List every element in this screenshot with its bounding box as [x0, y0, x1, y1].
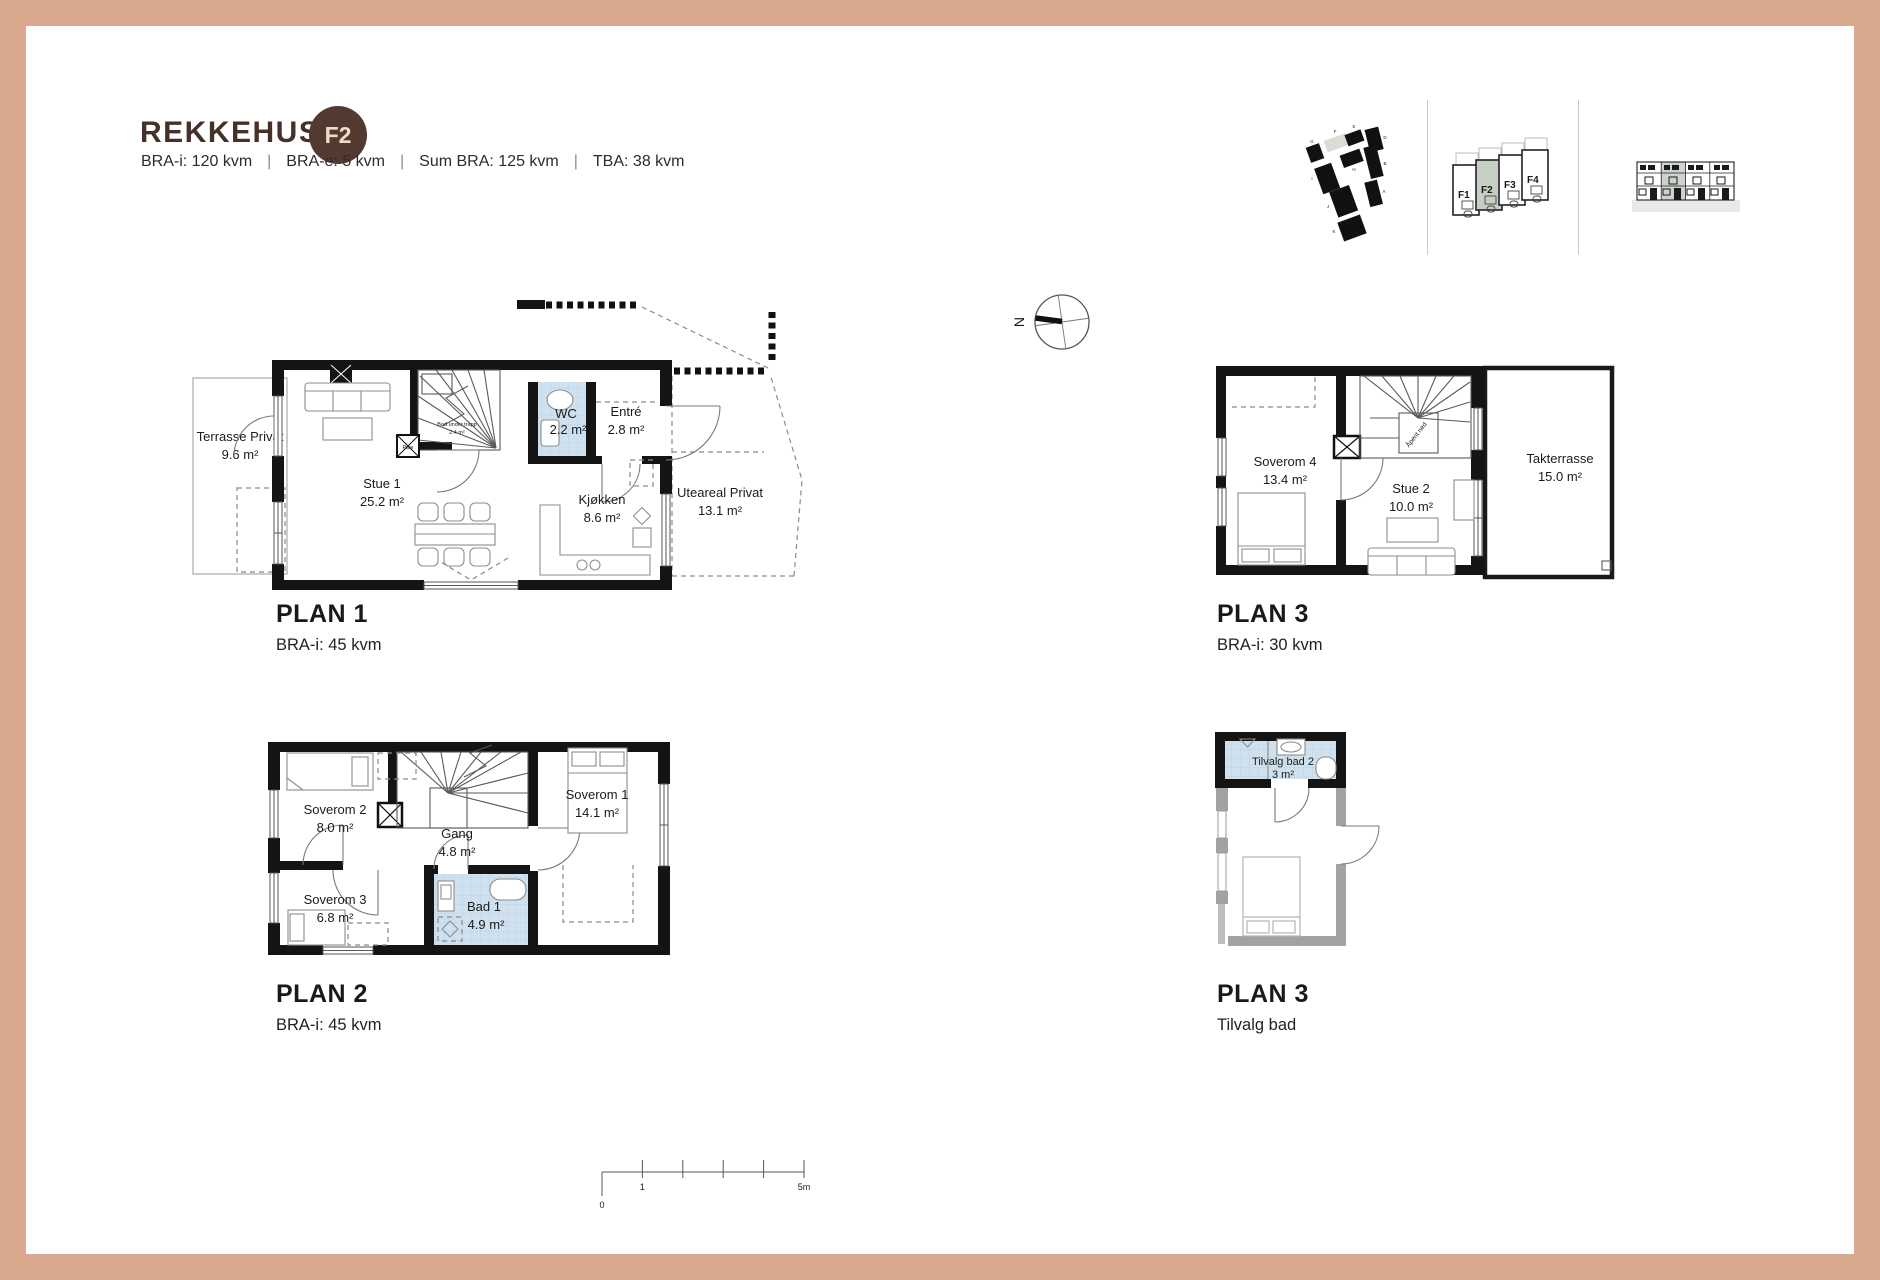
plan1-wc: WC 2.2 m²: [538, 382, 587, 456]
plan2-floorplan: Soverom 2 8.0 m² Soverom 3 6.8 m² Gang 4…: [228, 733, 708, 973]
room-area-terrasse: 9.6 m²: [222, 447, 260, 462]
meta-bra-e: BRA-e: 5 kvm: [286, 153, 385, 170]
room-label-uteareal: Uteareal Privat: [677, 485, 763, 500]
unit-label-f4: F4: [1527, 175, 1539, 186]
room-label-soverom3: Soverom 3: [304, 892, 367, 907]
plan2-soverom1: Soverom 1 14.1 m²: [563, 748, 633, 922]
area-summary: BRA-i: 120 kvm|BRA-e: 5 kvm|Sum BRA: 125…: [141, 153, 684, 171]
plan2-caption: PLAN 2 BRA-i: 45 kvm: [276, 980, 381, 1035]
room-label-wc: WC: [555, 406, 577, 421]
plan1-sofa: [305, 383, 390, 411]
meta-bra-i: BRA-i: 120 kvm: [141, 153, 252, 170]
site-label-h: H: [1352, 167, 1355, 172]
site-plan-map: G F E D B H I A J K: [1298, 95, 1438, 250]
meta-sum-bra: Sum BRA: 125 kvm: [419, 153, 559, 170]
plan2-shaft: [378, 803, 402, 827]
plan1-stair: Bod under trapp 2.4 m²: [418, 370, 500, 450]
room-label-takterrasse: Takterrasse: [1526, 451, 1593, 466]
room-label-terrasse: Terrasse Privat: [197, 429, 284, 444]
plan1-kitchen: Kjøkken 8.6 m²: [540, 460, 653, 575]
plan1-title: PLAN 1: [276, 600, 381, 629]
elevation-ground: [1632, 200, 1740, 212]
plan3-stair: Åpent ned: [1360, 376, 1471, 458]
plan3b-title: PLAN 3: [1217, 980, 1309, 1009]
room-area-bad1: 4.9 m²: [468, 917, 506, 932]
room-area-uteareal: 13.1 m²: [698, 503, 743, 518]
room-label-bod: Bod under trapp: [437, 422, 476, 428]
page-title: REKKEHUS:: [140, 116, 332, 150]
building-elevation: [1630, 152, 1745, 220]
room-area-kjokken: 8.6 m²: [584, 510, 622, 525]
plan3-soverom4: Soverom 4 13.4 m²: [1232, 376, 1316, 565]
room-area-wc: 2.2 m²: [550, 422, 588, 437]
room-area-stue2: 10.0 m²: [1389, 499, 1434, 514]
room-area-soverom2: 8.0 m²: [317, 820, 355, 835]
scale-label-1: 1: [640, 1182, 645, 1192]
plan1-doors: [234, 406, 720, 502]
tilvalg-bad-room: Tilvalg bad 2 3 m²: [1215, 732, 1346, 788]
site-label-e: E: [1352, 124, 1355, 129]
room-label-pipe: Pipe: [402, 445, 413, 451]
plan2-stair: [397, 745, 528, 828]
locator-divider-2: [1578, 100, 1579, 255]
site-label-f: F: [1334, 129, 1337, 134]
plan3-shaft: [1334, 436, 1360, 458]
site-label-k: K: [1332, 229, 1335, 234]
room-area-tilvalgbad: 3 m²: [1272, 769, 1294, 781]
plan1-dining-set: [415, 503, 495, 566]
north-compass: N: [1000, 288, 1110, 368]
plan1-caption: PLAN 1 BRA-i: 45 kvm: [276, 600, 381, 655]
scale-bar: 0 1 5m: [592, 1152, 822, 1212]
plan1-floorplan: Terrasse Privat 9.6 m² Uteareal Privat 1…: [190, 298, 810, 598]
unit-locator: F1 F2 F3 F4: [1445, 135, 1570, 225]
room-area-gang: 4.8 m²: [439, 844, 477, 859]
site-label-g: G: [1310, 139, 1314, 144]
room-label-kjokken: Kjøkken: [579, 492, 626, 507]
pipe-shaft: Pipe: [397, 435, 419, 457]
plan3-caption: PLAN 3 BRA-i: 30 kvm: [1217, 600, 1322, 655]
tilvalg-doors: [1275, 788, 1379, 864]
plan2-bad1: Bad 1 4.9 m²: [434, 874, 528, 945]
room-area-soverom1: 14.1 m²: [575, 805, 620, 820]
plan3-stue2: Stue 2 10.0 m²: [1368, 480, 1474, 575]
plan1-coffee-table: [323, 418, 372, 440]
stair-apent-ned-label: Åpent ned: [1403, 420, 1429, 449]
room-label-entre: Entré: [610, 404, 641, 419]
tilvalg-bed: [1243, 857, 1300, 936]
site-label-b: B: [1383, 161, 1386, 166]
room-label-tilvalgbad: Tilvalg bad 2: [1252, 756, 1314, 768]
room-area-soverom3: 6.8 m²: [317, 910, 355, 925]
site-label-i: I: [1311, 176, 1312, 181]
room-area-soverom4: 13.4 m²: [1263, 472, 1308, 487]
unit-label-f3: F3: [1504, 180, 1516, 191]
meta-tba: TBA: 38 kvm: [593, 153, 685, 170]
plan3-floorplan: Takterrasse 15.0 m² Åpent ned: [1208, 358, 1628, 593]
room-area-takterrasse: 15.0 m²: [1538, 469, 1583, 484]
room-label-stue2: Stue 2: [1392, 481, 1430, 496]
meta-separator: |: [574, 153, 578, 170]
room-area-bod: 2.4 m²: [449, 430, 465, 436]
site-label-d: D: [1383, 135, 1387, 140]
plan3-takterrasse: Takterrasse 15.0 m²: [1485, 368, 1612, 577]
plan2-title: PLAN 2: [276, 980, 381, 1009]
meta-separator: |: [400, 153, 404, 170]
site-buildings: [1306, 127, 1384, 242]
unit-badge-label: F2: [325, 122, 352, 149]
plan2-soverom3: Soverom 3 6.8 m²: [288, 892, 388, 945]
site-label-j: J: [1327, 204, 1329, 209]
plan3-tilvalg-floorplan: Tilvalg bad 2 3 m²: [1213, 731, 1398, 956]
plan1-subtitle: BRA-i: 45 kvm: [276, 636, 381, 655]
room-label-gang: Gang: [441, 826, 473, 841]
plan3-doors: [1341, 458, 1383, 500]
meta-separator: |: [267, 153, 271, 170]
plan2-subtitle: BRA-i: 45 kvm: [276, 1016, 381, 1035]
room-area-entre: 2.8 m²: [608, 422, 646, 437]
plan3-title: PLAN 3: [1217, 600, 1322, 629]
room-label-soverom1: Soverom 1: [566, 787, 629, 802]
room-label-bad1: Bad 1: [467, 899, 501, 914]
unit-label-f2: F2: [1481, 185, 1493, 196]
plan1-entre: Entré 2.8 m²: [596, 402, 656, 437]
room-label-soverom4: Soverom 4: [1254, 454, 1317, 469]
room-label-soverom2: Soverom 2: [304, 802, 367, 817]
scale-label-5m: 5m: [798, 1182, 811, 1192]
room-area-stue1: 25.2 m²: [360, 494, 405, 509]
room-label-stue1: Stue 1: [363, 476, 401, 491]
compass-needle: [1036, 318, 1063, 322]
plan3b-subtitle: Tilvalg bad: [1217, 1016, 1309, 1035]
scale-label-0: 0: [599, 1200, 604, 1210]
plan3b-caption: PLAN 3 Tilvalg bad: [1217, 980, 1309, 1035]
compass-north-label: N: [1011, 317, 1027, 327]
site-label-a: A: [1382, 189, 1385, 194]
tilvalg-existing-walls: [1216, 788, 1346, 946]
unit-label-f1: F1: [1458, 190, 1470, 201]
plan3-subtitle: BRA-i: 30 kvm: [1217, 636, 1322, 655]
